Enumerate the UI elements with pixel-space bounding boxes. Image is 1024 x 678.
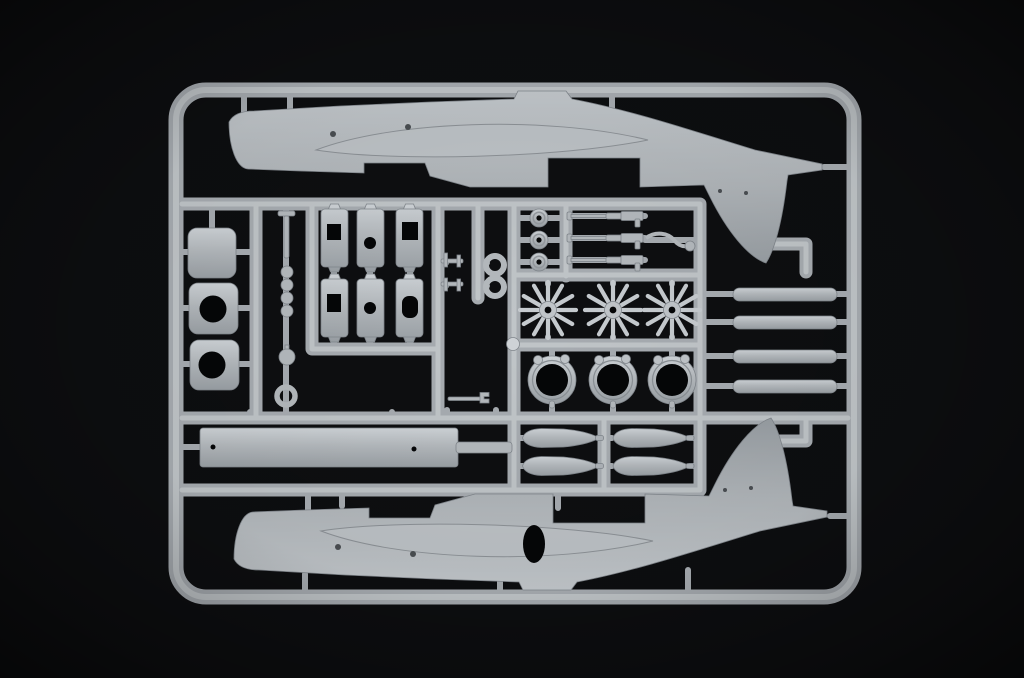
vignette-overlay [0, 0, 1024, 678]
photo-canvas [0, 0, 1024, 678]
sprue-photo [0, 0, 1024, 678]
